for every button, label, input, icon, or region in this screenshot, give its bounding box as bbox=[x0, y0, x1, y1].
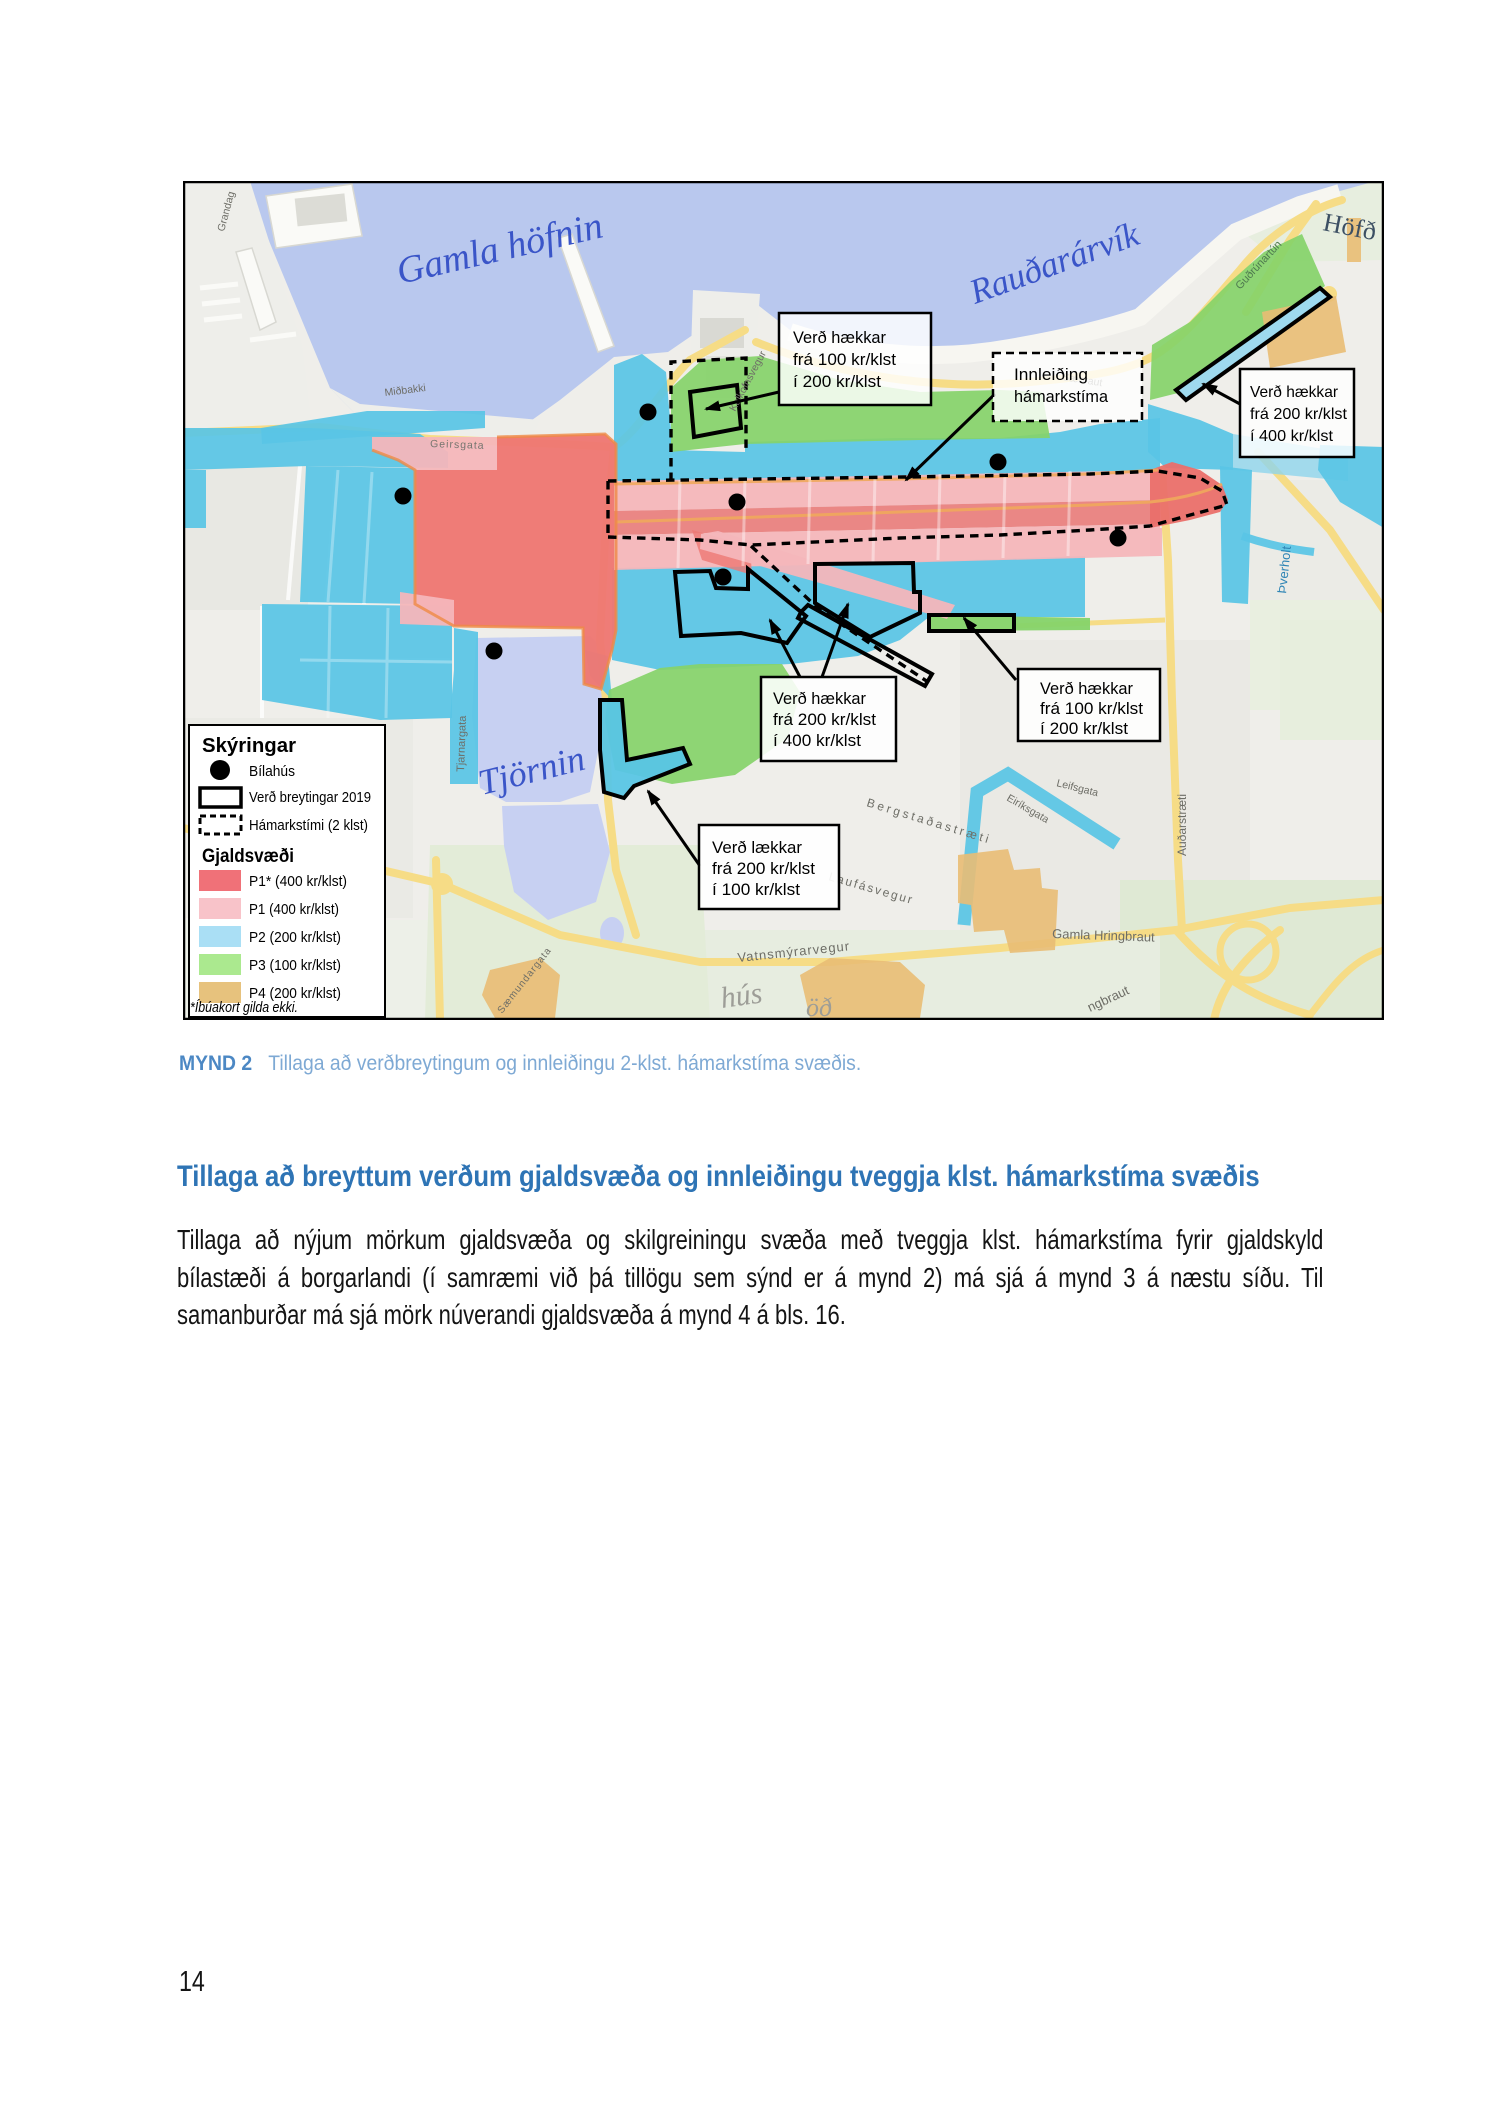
svg-text:frá 200 kr/klst: frá 200 kr/klst bbox=[773, 710, 876, 729]
svg-text:frá 100 kr/klst: frá 100 kr/klst bbox=[1040, 699, 1143, 718]
svg-text:Bílahús: Bílahús bbox=[249, 763, 295, 780]
svg-text:öð: öð bbox=[806, 993, 832, 1020]
svg-text:frá 100 kr/klst: frá 100 kr/klst bbox=[793, 350, 896, 369]
svg-text:Gjaldsvæði: Gjaldsvæði bbox=[202, 846, 294, 867]
svg-text:Verð hækkar: Verð hækkar bbox=[793, 328, 886, 347]
svg-text:Verð lækkar: Verð lækkar bbox=[712, 838, 802, 857]
svg-text:Innleiðing: Innleiðing bbox=[1014, 365, 1088, 384]
svg-text:P1* (400 kr/klst): P1* (400 kr/klst) bbox=[249, 873, 347, 890]
svg-text:í 200 kr/klst: í 200 kr/klst bbox=[1040, 719, 1128, 738]
svg-text:frá 200 kr/klst: frá 200 kr/klst bbox=[712, 859, 815, 878]
svg-text:Geirsgata: Geirsgata bbox=[430, 438, 485, 452]
svg-text:Verð hækkar: Verð hækkar bbox=[1250, 384, 1339, 401]
svg-text:í 200 kr/klst: í 200 kr/klst bbox=[793, 372, 881, 391]
svg-text:Skýringar: Skýringar bbox=[202, 735, 296, 757]
svg-text:hámarkstíma: hámarkstíma bbox=[1014, 387, 1109, 406]
svg-text:Verð breytingar 2019: Verð breytingar 2019 bbox=[249, 789, 371, 806]
svg-text:frá 200 kr/klst: frá 200 kr/klst bbox=[1250, 406, 1348, 423]
svg-text:hús: hús bbox=[718, 976, 764, 1014]
svg-text:Hámarkstími (2 klst): Hámarkstími (2 klst) bbox=[249, 817, 368, 834]
svg-text:í 100 kr/klst: í 100 kr/klst bbox=[712, 880, 800, 899]
svg-text:P2 (200 kr/klst): P2 (200 kr/klst) bbox=[249, 929, 341, 946]
svg-text:Auðarstræti: Auðarstræti bbox=[1175, 794, 1189, 856]
svg-text:*Íbúakort gilda ekki.: *Íbúakort gilda ekki. bbox=[190, 999, 298, 1016]
svg-text:P1 (400 kr/klst): P1 (400 kr/klst) bbox=[249, 901, 339, 918]
svg-text:Verð hækkar: Verð hækkar bbox=[1040, 679, 1133, 698]
svg-text:í 400 kr/klst: í 400 kr/klst bbox=[1250, 428, 1334, 445]
svg-text:Verð hækkar: Verð hækkar bbox=[773, 689, 866, 708]
svg-text:í 400 kr/klst: í 400 kr/klst bbox=[773, 731, 861, 750]
svg-text:P3 (100 kr/klst): P3 (100 kr/klst) bbox=[249, 957, 341, 974]
svg-text:Tjarnargata: Tjarnargata bbox=[455, 715, 469, 773]
